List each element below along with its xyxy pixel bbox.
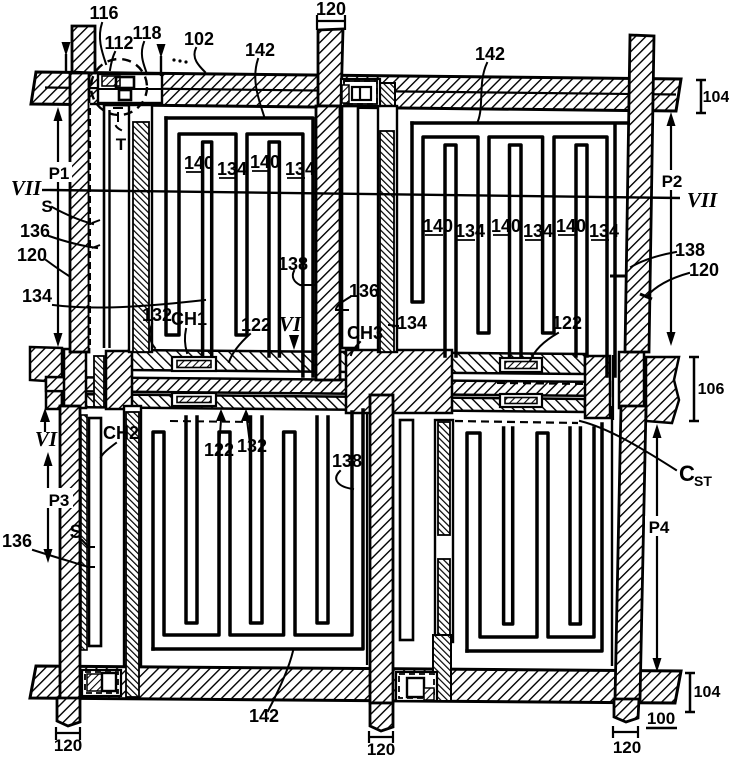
svg-text:CH3: CH3	[347, 323, 383, 343]
svg-text:132: 132	[237, 436, 267, 456]
svg-text:ST: ST	[694, 473, 712, 489]
svg-text:134: 134	[22, 286, 52, 306]
svg-text:140: 140	[423, 216, 453, 236]
svg-text:104: 104	[703, 89, 729, 106]
svg-text:134: 134	[217, 159, 247, 179]
svg-text:122: 122	[241, 315, 271, 335]
svg-text:140: 140	[491, 216, 521, 236]
svg-text:C: C	[679, 461, 695, 486]
svg-text:VI: VI	[35, 427, 58, 451]
svg-text:118: 118	[132, 23, 161, 43]
svg-text:136: 136	[20, 221, 50, 241]
svg-text:134: 134	[397, 313, 427, 333]
svg-text:VI: VI	[279, 312, 302, 336]
svg-text:120: 120	[367, 740, 395, 757]
svg-text:120: 120	[613, 738, 641, 757]
svg-text:P2: P2	[662, 172, 683, 191]
svg-text:CH1: CH1	[171, 309, 207, 329]
svg-text:134: 134	[455, 221, 485, 241]
svg-text:138: 138	[332, 451, 362, 471]
svg-text:142: 142	[245, 40, 275, 60]
svg-text:140: 140	[184, 153, 214, 173]
svg-text:134: 134	[285, 159, 315, 179]
svg-text:116: 116	[89, 3, 118, 23]
svg-text:120: 120	[54, 736, 82, 755]
svg-text:102: 102	[184, 29, 214, 49]
svg-text:CH2: CH2	[103, 423, 139, 443]
svg-text:P4: P4	[649, 518, 670, 537]
svg-text:140: 140	[250, 152, 280, 172]
svg-text:136: 136	[2, 531, 32, 551]
svg-text:S: S	[41, 197, 52, 216]
svg-text:132: 132	[142, 305, 172, 325]
svg-text:142: 142	[249, 706, 279, 726]
svg-text:142: 142	[475, 44, 505, 64]
svg-text:100: 100	[647, 709, 675, 728]
svg-text:122: 122	[552, 313, 582, 333]
svg-text:VII: VII	[11, 176, 42, 200]
svg-text:134: 134	[523, 221, 553, 241]
svg-text:104: 104	[694, 684, 721, 701]
svg-text:S: S	[70, 522, 83, 543]
svg-text:140: 140	[556, 216, 586, 236]
svg-text:136: 136	[349, 281, 379, 301]
svg-text:T: T	[116, 135, 127, 154]
svg-text:134: 134	[589, 221, 619, 241]
svg-text:P1: P1	[49, 164, 70, 183]
svg-text:120: 120	[17, 245, 47, 265]
svg-text:VII: VII	[687, 188, 718, 212]
svg-text:120: 120	[316, 0, 346, 19]
svg-text:P3: P3	[49, 491, 70, 510]
svg-text:106: 106	[698, 381, 725, 398]
svg-text:138: 138	[675, 240, 705, 260]
svg-text:112: 112	[104, 33, 133, 53]
svg-text:120: 120	[689, 260, 719, 280]
